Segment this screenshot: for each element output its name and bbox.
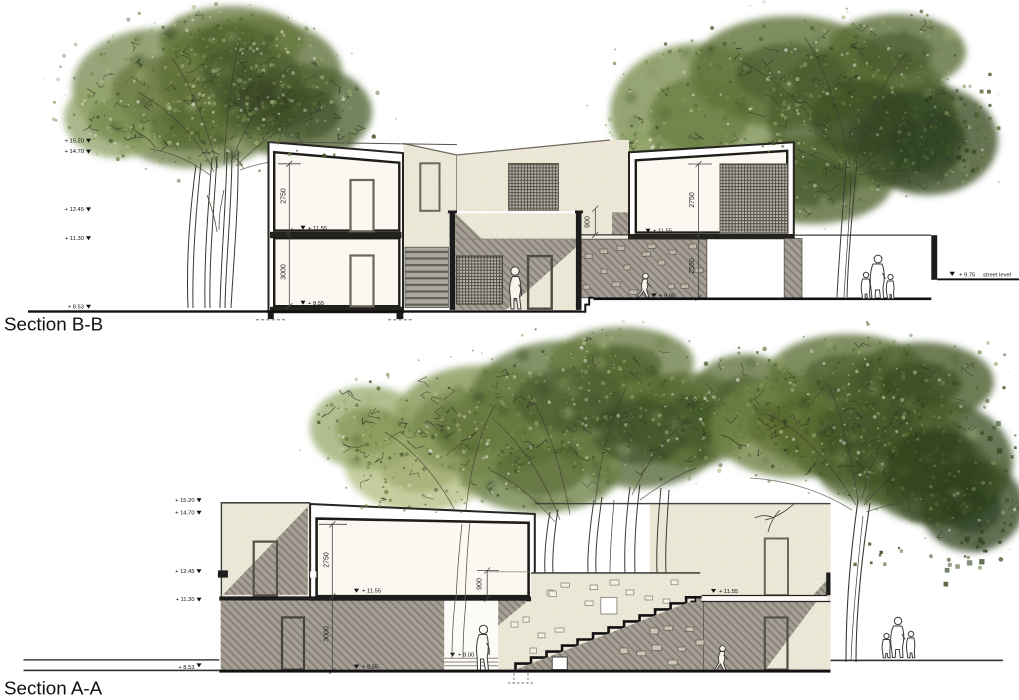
svg-text:2750: 2750 [324,552,331,568]
svg-text:2550: 2550 [689,258,696,274]
svg-text:2750: 2750 [281,188,288,204]
svg-text:900: 900 [477,578,484,590]
svg-text:+ 14.70: + 14.70 [175,510,195,516]
svg-text:3000: 3000 [324,626,331,642]
svg-text:+ 11.30: + 11.30 [176,597,195,603]
svg-text:+ 11.55: + 11.55 [308,226,327,232]
svg-text:Section A-A: Section A-A [4,678,103,699]
svg-text:+ 11.55: + 11.55 [653,229,672,235]
svg-text:street level: street level [983,273,1011,279]
svg-text:2750: 2750 [689,192,696,208]
svg-text:Section B-B: Section B-B [4,314,103,335]
svg-text:+ 9.00: + 9.00 [458,653,474,659]
svg-text:+ 8.53: + 8.53 [178,665,194,671]
svg-text:+ 15.20: + 15.20 [175,498,195,504]
svg-text:+ 12.45: + 12.45 [64,207,84,213]
svg-text:+ 14.70: + 14.70 [64,149,84,155]
svg-text:3000: 3000 [281,264,288,280]
svg-text:+ 11.55: + 11.55 [719,589,738,595]
svg-text:+ 15.20: + 15.20 [64,138,84,144]
svg-text:+ 9.75: + 9.75 [959,273,975,279]
svg-text:+ 8.55: + 8.55 [308,301,324,307]
svg-text:+ 11.30: + 11.30 [65,236,84,242]
svg-text:+ 12.45: + 12.45 [175,569,195,575]
svg-text:900: 900 [585,216,592,228]
svg-text:+ 11.55: + 11.55 [362,589,381,595]
svg-text:+ 8.53: + 8.53 [68,304,84,310]
